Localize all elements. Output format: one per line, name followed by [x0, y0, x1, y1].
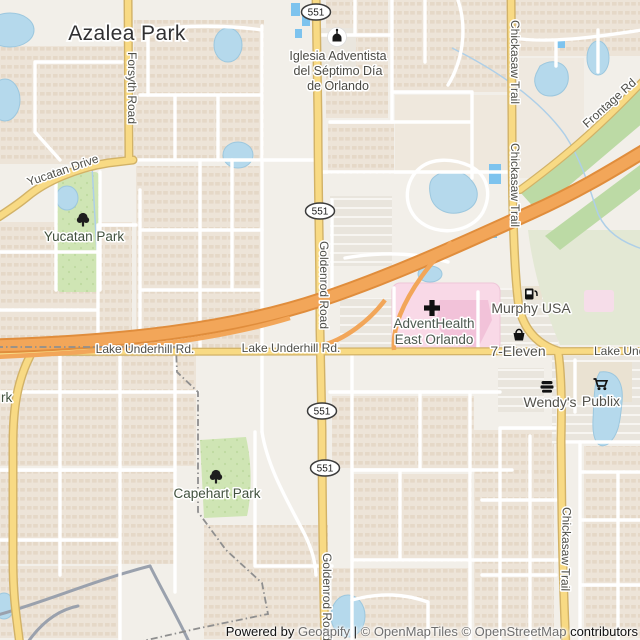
attribution-powered-by: Powered by — [226, 624, 298, 639]
poi-label-adventhealth-line2: East Orlando — [395, 332, 474, 347]
road-label-lake-underhill-center: Lake Underhill Rd. — [242, 341, 341, 355]
poi-label-publix: Publix — [582, 393, 620, 409]
poi-label-capehart-park: Capehart Park — [173, 486, 260, 501]
road-label-chickasaw-mid: Chickasaw Trail — [508, 143, 522, 227]
road-label-lake-underhill-right: Lake Underhill Rd. — [594, 344, 640, 358]
geoapify-link[interactable]: Geoapify — [298, 624, 350, 639]
poi-label-partial-park: rk — [1, 390, 12, 405]
shield-551: 551 — [314, 407, 331, 418]
shield-551: 551 — [308, 8, 325, 19]
map-canvas[interactable]: Azalea Park Iglesia Adventista del Sépti… — [0, 0, 640, 640]
poi-label-murphy-usa: Murphy USA — [491, 300, 571, 316]
poi-label-adventhealth-line1: AdventHealth — [393, 316, 474, 331]
openmaptiles-link[interactable]: © OpenMapTiles — [361, 624, 462, 639]
place-of-worship-icon — [328, 28, 347, 47]
church-label-line3: de Orlando — [307, 79, 369, 93]
capehart-park-area — [200, 437, 251, 518]
map-svg: Azalea Park Iglesia Adventista del Sépti… — [0, 0, 640, 640]
attribution-bar: Powered by Geoapify | © OpenMapTiles © O… — [226, 624, 638, 639]
shield-551: 551 — [317, 464, 334, 475]
road-label-lake-underhill-left: Lake Underhill Rd. — [96, 342, 195, 356]
fast-food-icon — [541, 381, 554, 393]
road-label-forsyth: Forsyth Road — [125, 52, 139, 124]
road-label-chickasaw-bottom: Chickasaw Trail — [558, 507, 573, 591]
poi-label-yucatan-park: Yucatan Park — [44, 229, 125, 244]
road-label-goldenrod-upper: Goldenrod Road — [317, 241, 331, 329]
place-label-azalea-park: Azalea Park — [68, 22, 186, 45]
church-label-line2: del Séptimo Día — [294, 64, 383, 78]
openstreetmap-link[interactable]: © OpenStreetMap — [461, 624, 566, 639]
poi-label-seven-eleven: 7-Eleven — [490, 343, 545, 359]
poi-label-wendys: Wendy's — [524, 394, 577, 410]
attribution-contributors: contributors — [566, 624, 638, 639]
shield-551: 551 — [312, 207, 329, 218]
attribution-separator: | — [350, 624, 361, 639]
road-label-chickasaw-top: Chickasaw Trail — [508, 20, 522, 104]
church-label-line1: Iglesia Adventista — [289, 49, 386, 63]
